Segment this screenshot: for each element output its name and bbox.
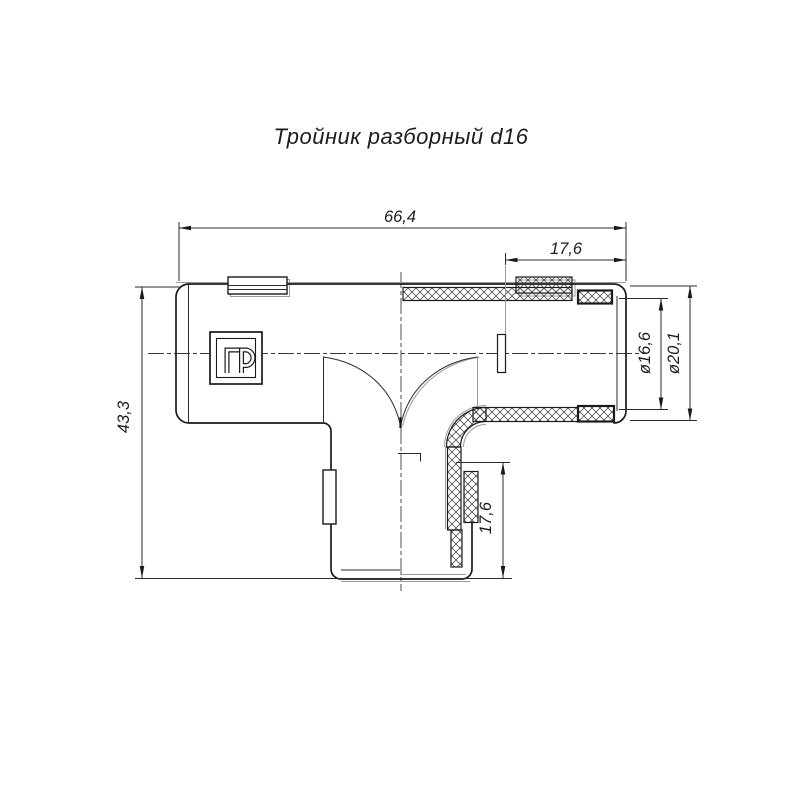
centerlines (148, 272, 646, 591)
drawing-canvas: Тройник разборный d16 (0, 0, 800, 800)
gasket-seals (403, 277, 614, 567)
left-and-bottom-outline (176, 284, 472, 579)
side-latch-tab (323, 470, 336, 524)
dim-branch-right-value: 17,6 (550, 240, 583, 258)
gasket-elbow-bend (447, 408, 487, 448)
gasket-clamp-block (464, 472, 478, 523)
dim-total-width-value: 66,4 (384, 208, 416, 226)
gasket-bottom-band (473, 408, 578, 422)
dim-total-height-value: 43,3 (115, 400, 133, 433)
dim-outer-diameter-value: ø20,1 (665, 332, 683, 374)
gasket-vertical-strip (448, 447, 462, 530)
gasket-top-raised-block (516, 277, 572, 293)
gasket-vertical-strip-lower (451, 530, 462, 567)
logo-pr (210, 332, 262, 384)
gasket-bottom-end-block (578, 406, 614, 422)
drawing-title: Тройник разборный d16 (274, 124, 529, 149)
catch-pin (498, 335, 506, 373)
tee-fitting-drawing: Тройник разборный d16 (0, 0, 800, 800)
dim-branch-bottom-value: 17,6 (477, 501, 495, 534)
dim-branch-right: 17,6 (506, 240, 627, 265)
gasket-top-end-block (578, 291, 612, 304)
dim-inner-diameter-value: ø16,6 (636, 331, 654, 374)
funnel-arc-left (324, 357, 401, 426)
